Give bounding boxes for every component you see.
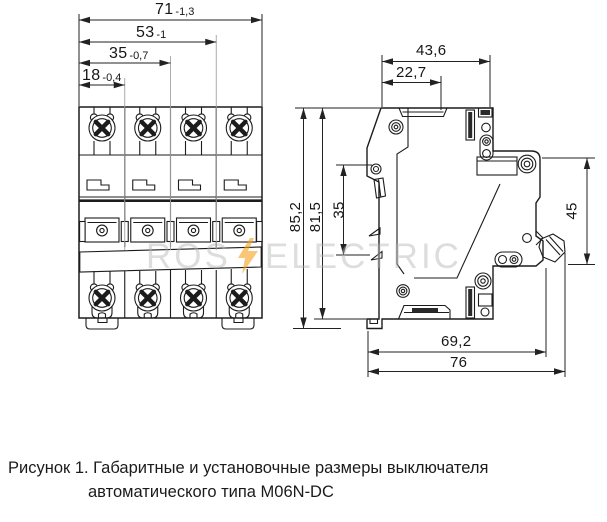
side-view-drawing — [367, 108, 565, 329]
figure-page: ROS ELECTRIC 71-1,3 53-1 35-0,7 18-0,4 4… — [0, 0, 607, 522]
dim-label-76: 76 — [450, 355, 467, 371]
terminal-screw-icon — [89, 284, 115, 311]
toggle-handle — [85, 218, 119, 242]
dim-label-22-7: 22,7 — [396, 65, 426, 81]
toggle-handle — [131, 218, 165, 242]
dim-label-18: 18-0,4 — [82, 68, 121, 84]
side-outline — [367, 108, 543, 329]
terminal-screw-icon — [181, 114, 207, 141]
terminal-screw-icon — [181, 284, 207, 311]
front-label-band — [80, 247, 261, 272]
terminal-screw-icon — [226, 114, 252, 141]
terminal-screw-icon — [89, 114, 115, 141]
toggle-handle — [177, 218, 211, 242]
terminal-screw-icon — [226, 284, 252, 311]
dim-label-35: 35-0,7 — [109, 46, 148, 62]
terminal-screw-icon — [135, 284, 161, 311]
dim-label-81-5: 81,5 — [308, 202, 324, 232]
dim-label-53: 53-1 — [136, 25, 166, 41]
mounting-foot — [222, 318, 254, 329]
dim-label-45: 45 — [565, 202, 581, 219]
dim-label-69-2: 69,2 — [441, 334, 471, 350]
caption-line-2: автоматического типа М06N-DC — [88, 480, 488, 504]
figure-caption: Рисунок 1. Габаритные и установочные раз… — [8, 456, 488, 504]
caption-line-1: Рисунок 1. Габаритные и установочные раз… — [8, 456, 488, 480]
terminal-screw-icon — [135, 114, 161, 141]
dim-label-85-2: 85,2 — [288, 202, 304, 232]
dim-label-71: 71-1,3 — [155, 2, 194, 18]
dim-label-35-side: 35 — [332, 201, 348, 218]
toggle-handle — [222, 218, 256, 242]
dim-label-43-6: 43,6 — [416, 43, 446, 59]
mounting-foot — [86, 318, 118, 329]
